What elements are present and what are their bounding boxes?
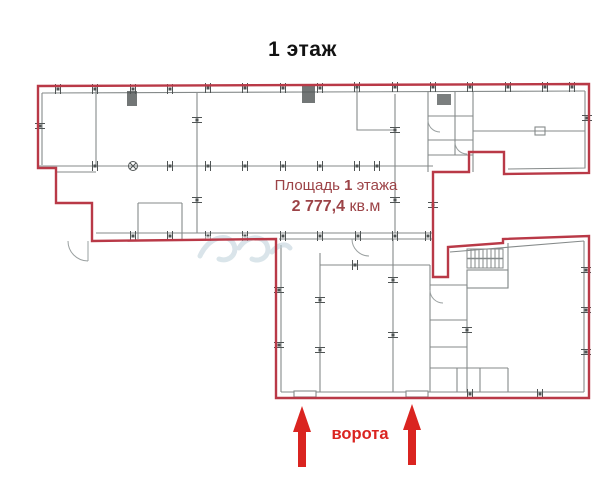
page-title: 1 этаж bbox=[0, 38, 605, 62]
gates-label: ворота bbox=[320, 425, 400, 444]
staircase-symbol bbox=[467, 249, 503, 268]
up-arrow-icon bbox=[403, 404, 421, 465]
area-label-line2: 2 777,4 кв.м bbox=[250, 196, 422, 217]
floor-plan-drawing bbox=[0, 0, 605, 490]
floor-plan-page: 1 этаж Площадь 1 этажа 2 777,4 кв.м воро… bbox=[0, 0, 605, 490]
area-label: Площадь 1 этажа 2 777,4 кв.м bbox=[250, 175, 422, 217]
area-label-line1: Площадь 1 этажа bbox=[250, 175, 422, 196]
up-arrow-icon bbox=[293, 406, 311, 467]
